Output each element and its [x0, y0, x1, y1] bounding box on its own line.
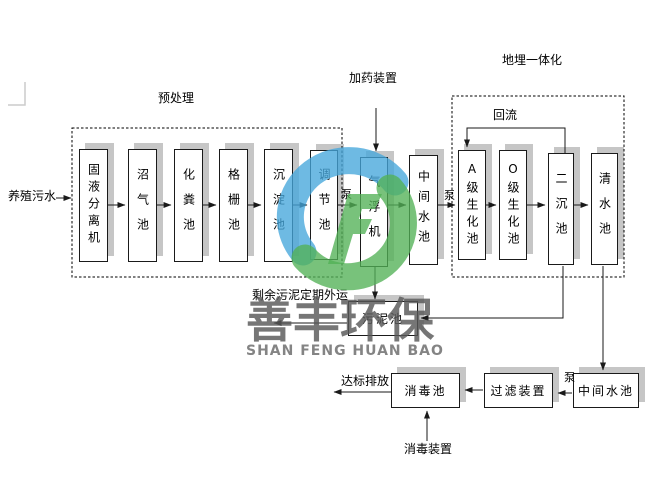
sludge-out-label: 剩余污泥定期外运 [252, 289, 348, 302]
arrow-secondary-sludge [421, 266, 563, 318]
underground-section-label: 地埋一体化 [502, 54, 562, 67]
pump-label-2: 泵 [444, 190, 455, 202]
box-filter-device: 过滤装置 [484, 373, 553, 408]
pump-label-1: 泵 [341, 189, 352, 201]
box-secondary-sedimentation-tank: 二沉池 [548, 153, 574, 265]
pretreatment-section-label: 预处理 [158, 92, 194, 105]
page-corner-mark [8, 82, 25, 105]
box-grid-tank: 格栅池 [219, 149, 248, 262]
box-disinfection-tank: 消毒池 [391, 373, 460, 408]
box-a-grade-bio-tank: A级生化池 [458, 150, 486, 260]
process-flow-diagram: 固液分离机 沼气池 化粪池 格栅池 沉淀池 调节池 气浮机 中间水池 A级生化池… [0, 0, 650, 500]
box-air-flotation-machine: 气浮机 [360, 157, 388, 267]
box-solid-liquid-separator: 固液分离机 [79, 149, 108, 262]
box-intermediate-tank: 中间水池 [409, 155, 438, 265]
disinfection-device-label: 消毒装置 [404, 443, 452, 456]
reflux-label: 回流 [493, 109, 517, 122]
dosing-device-label: 加药装置 [349, 72, 397, 85]
box-intermediate-tank-2: 中间水池 [573, 373, 639, 408]
box-biogas-tank: 沼气池 [128, 149, 157, 262]
box-clear-water-tank: 清水池 [591, 153, 618, 265]
inlet-label: 养殖污水 [8, 190, 56, 203]
box-sedimentation-tank: 沉淀池 [264, 149, 293, 262]
box-o-grade-bio-tank: O级生化池 [499, 150, 527, 260]
watermark-company-name-en: SHAN FENG HUAN BAO [246, 343, 428, 359]
pump-label-3: 泵 [564, 372, 575, 384]
box-septic-tank: 化粪池 [174, 149, 203, 262]
pretreatment-dashed-frame [72, 128, 342, 277]
box-regulating-tank: 调节池 [310, 150, 338, 260]
box-sludge-tank: 污泥池 [348, 301, 418, 336]
discharge-label: 达标排放 [341, 375, 389, 388]
